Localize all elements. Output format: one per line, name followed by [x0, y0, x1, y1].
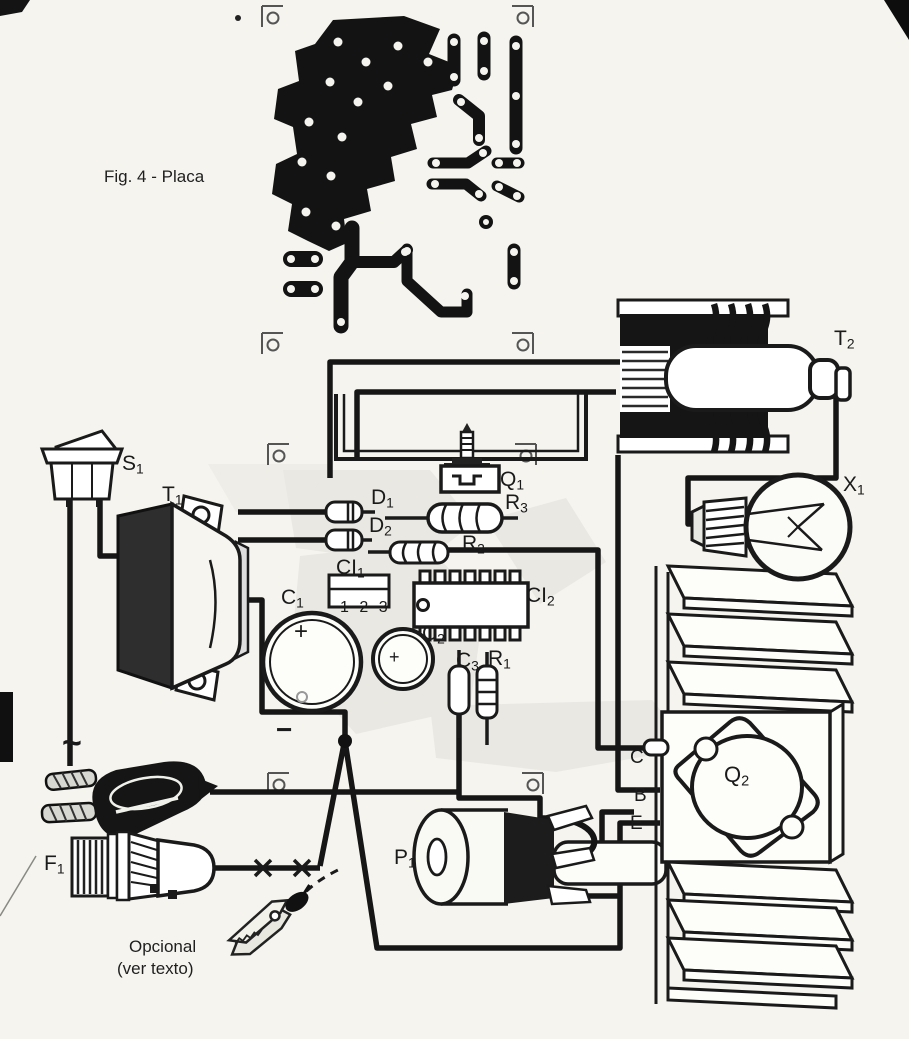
transformer-t1: [118, 496, 248, 700]
registration-mark: [268, 444, 289, 465]
fuse-holder-f1: [72, 832, 214, 900]
registration-mark: [262, 6, 283, 27]
heatsink: [644, 566, 852, 1008]
ic-ci1: [329, 575, 389, 607]
registration-mark: [262, 333, 283, 354]
ic-ci2: [414, 571, 528, 640]
capacitor-c2: [373, 629, 433, 689]
plug-prong: [42, 803, 97, 823]
screw: [444, 423, 490, 470]
registration-mark: [515, 444, 536, 465]
transistor-q1: [441, 466, 499, 492]
ac-plug: [42, 761, 218, 837]
transformer-t2: [618, 300, 850, 452]
alligator-clip: [219, 882, 325, 961]
registration-mark: [512, 333, 533, 354]
plug-prong: [45, 769, 96, 790]
capacitor-c1: [263, 613, 361, 711]
switch-s1: [42, 431, 122, 507]
diagram-svg: [0, 0, 909, 1039]
pcb-artwork: [272, 16, 521, 326]
registration-mark: [512, 6, 533, 27]
scanned-figure-page: Fig. 4 - Placa Opcional (ver texto) S1T1…: [0, 0, 909, 1039]
lamp-x1: [692, 475, 850, 579]
junction-dot: [338, 734, 352, 748]
registration-mark: [522, 773, 543, 794]
wire-fuse: [214, 744, 344, 868]
